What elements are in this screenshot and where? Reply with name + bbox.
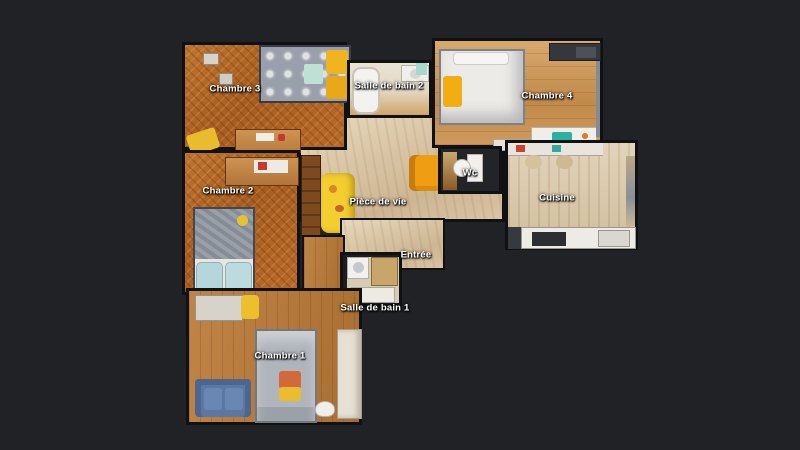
washing-machine	[347, 257, 369, 279]
table-item	[329, 185, 337, 193]
stool	[525, 155, 542, 169]
desk-item	[278, 134, 285, 141]
cabinet	[301, 155, 321, 241]
blanket	[443, 76, 462, 107]
shelf	[626, 156, 635, 226]
fridge	[508, 227, 521, 249]
washer-drum	[353, 262, 364, 273]
sofa-cushion	[204, 388, 222, 410]
room-label-piece-de-vie: Pièce de vie	[350, 197, 407, 208]
counter	[521, 227, 636, 249]
counter-item	[552, 145, 561, 152]
room-label-chambre-2: Chambre 2	[203, 186, 254, 197]
cushion	[279, 387, 301, 401]
bag	[315, 401, 335, 417]
floorplan-viewport[interactable]: Chambre 3 Salle de bain 2 Chambre 4 Cham…	[0, 0, 800, 450]
wardrobe-door	[576, 47, 596, 58]
chair	[241, 295, 259, 319]
wall-segment	[596, 61, 600, 137]
stool	[556, 155, 573, 169]
room-label-entree: Entrée	[401, 250, 432, 261]
counter-item	[516, 145, 525, 152]
desk-item	[582, 133, 588, 139]
wardrobe	[337, 329, 362, 419]
room-label-cuisine: Cuisine	[539, 193, 575, 204]
room-label-chambre-3: Chambre 3	[210, 84, 261, 95]
desk-item	[258, 162, 267, 170]
room-label-chambre-4: Chambre 4	[522, 91, 573, 102]
room-chambre-2[interactable]	[182, 150, 300, 295]
cooktop	[532, 232, 566, 246]
pillow	[326, 50, 348, 74]
cushion	[304, 64, 323, 84]
table-item	[335, 205, 344, 212]
desk-item	[256, 133, 274, 141]
stool	[237, 215, 248, 226]
armchair	[409, 155, 441, 191]
wardrobe	[549, 43, 601, 61]
room-chambre-3[interactable]	[182, 42, 347, 150]
room-label-chambre-1: Chambre 1	[255, 351, 306, 362]
desk	[225, 157, 299, 186]
bed	[259, 45, 351, 103]
pillow	[453, 52, 509, 65]
room-chambre-4[interactable]	[432, 38, 603, 148]
room-label-salle-de-bain-1: Salle de bain 1	[341, 303, 410, 314]
cabinet	[371, 257, 398, 286]
sofa	[195, 379, 251, 417]
room-label-salle-de-bain-2: Salle de bain 2	[355, 81, 424, 92]
radiator	[203, 53, 219, 65]
bed	[255, 329, 317, 423]
bed	[439, 49, 525, 125]
counter	[508, 143, 603, 156]
desk	[195, 295, 243, 321]
room-label-wc: Wc	[463, 168, 478, 179]
towel	[416, 63, 427, 75]
pillow	[326, 76, 348, 99]
sink	[598, 230, 630, 247]
sofa-cushion	[225, 388, 243, 410]
